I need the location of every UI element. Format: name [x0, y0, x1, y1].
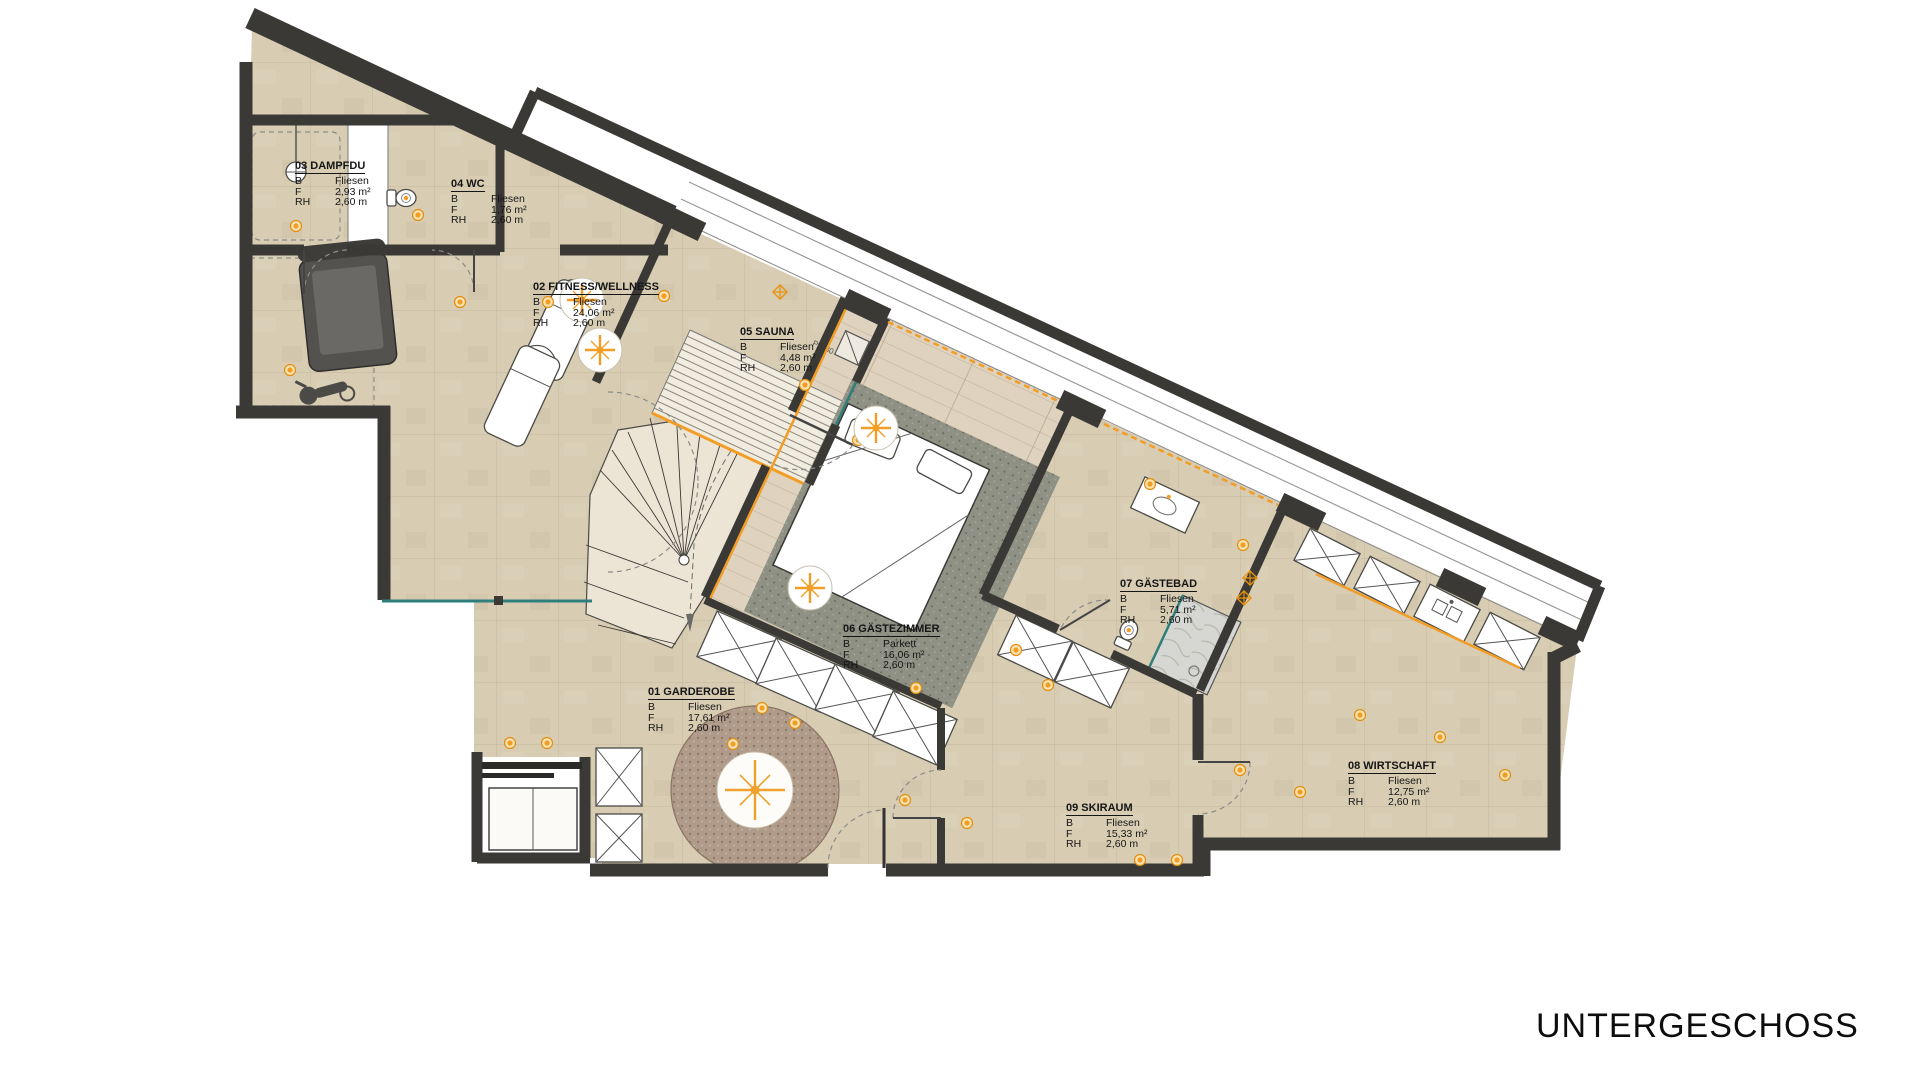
room-title: 07 GÄSTEBAD [1120, 578, 1197, 592]
floor-title: UNTERGESCHOSS [1536, 1008, 1859, 1044]
room-label-garderobe: 01 GARDEROBE BFliesen F17,61 m² RH2,60 m [648, 682, 735, 734]
wc-toilet [387, 190, 416, 207]
room-label-gaestezimmer: 06 GÄSTEZIMMER BParkett F16,06 m² RH2,60… [843, 619, 940, 671]
room-title: 01 GARDEROBE [648, 686, 735, 700]
room-title: 04 WC [451, 178, 485, 192]
room-label-sauna: 05 SAUNA BFliesen F4,48 m² RH2,60 m [740, 322, 816, 374]
room-label-wirtschaft: 08 WIRTSCHAFT BFliesen F12,75 m² RH2,60 … [1348, 756, 1436, 808]
floorplan-page: PH 80 [0, 0, 1920, 1080]
room-label-gaestebad: 07 GÄSTEBAD BFliesen F5,71 m² RH2,60 m [1120, 574, 1197, 626]
room-label-dampfbad: 03 DAMPFDU BFliesen F2,93 m² RH2,60 m [295, 156, 371, 208]
room-title: 06 GÄSTEZIMMER [843, 623, 940, 637]
room-title: 09 SKIRAUM [1066, 802, 1133, 816]
room-title: 02 FITNESS/WELLNESS [533, 281, 659, 295]
room-label-fitness: 02 FITNESS/WELLNESS BFliesen F24,06 m² R… [533, 277, 659, 329]
room-title: 08 WIRTSCHAFT [1348, 760, 1436, 774]
room-title: 03 DAMPFDU [295, 160, 365, 174]
room-label-wc: 04 WC BFliesen F1,76 m² RH2,60 m [451, 174, 527, 226]
treadmill [297, 238, 398, 373]
elevator [477, 752, 590, 862]
room-label-skiraum: 09 SKIRAUM BFliesen F15,33 m² RH2,60 m [1066, 798, 1147, 850]
room-title: 05 SAUNA [740, 326, 794, 340]
floorplan-drawing: PH 80 [0, 0, 1920, 1080]
